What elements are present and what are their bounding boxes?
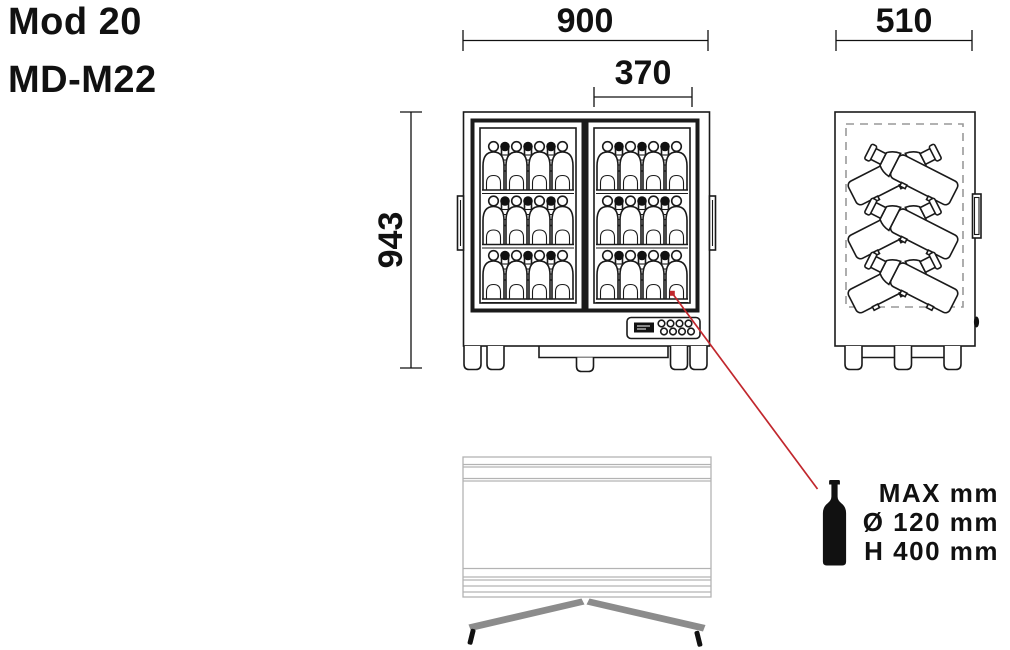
door-handle-right [710, 196, 716, 250]
door-foot-left [467, 628, 476, 645]
dim-door-label: 370 [615, 54, 672, 92]
model-title: Mod 20 [8, 1, 142, 43]
open-door-right [587, 599, 706, 632]
limit-height-label: H 400 mm [864, 536, 999, 566]
door-handle-left [458, 196, 464, 250]
front-legs [464, 346, 707, 372]
dim-depth-510: 510 [836, 2, 972, 51]
callout [670, 291, 818, 489]
diagram-canvas: Mod 20 MD-M22 900 370 943 510 [0, 0, 1010, 650]
front-view [458, 112, 716, 372]
bottle-limit-legend: MAX mm Ø 120 mm H 400 mm [823, 478, 999, 566]
bottle-icon [823, 480, 846, 566]
dim-height-943: 943 [372, 112, 422, 368]
dim-door-370: 370 [594, 54, 692, 107]
model-code: MD-M22 [8, 59, 157, 101]
control-panel [627, 318, 700, 339]
dim-width-900: 900 [463, 2, 708, 51]
dim-width-label: 900 [557, 2, 614, 40]
display [634, 323, 654, 333]
side-legs [845, 346, 961, 370]
door-left [473, 121, 584, 311]
dim-depth-label: 510 [876, 2, 933, 40]
door-foot-right [694, 630, 703, 647]
top-view [463, 457, 711, 647]
side-view [835, 112, 981, 370]
open-door-left [469, 599, 585, 632]
callout-line [672, 293, 817, 489]
limit-max-label: MAX mm [879, 478, 999, 508]
side-handle [973, 194, 982, 238]
limit-diameter-label: Ø 120 mm [863, 507, 999, 537]
door-right [587, 121, 698, 311]
diagram-page: Mod 20 MD-M22 900 370 943 510 [0, 0, 1010, 650]
power-inlet [974, 317, 979, 328]
dim-height-label: 943 [372, 212, 410, 269]
